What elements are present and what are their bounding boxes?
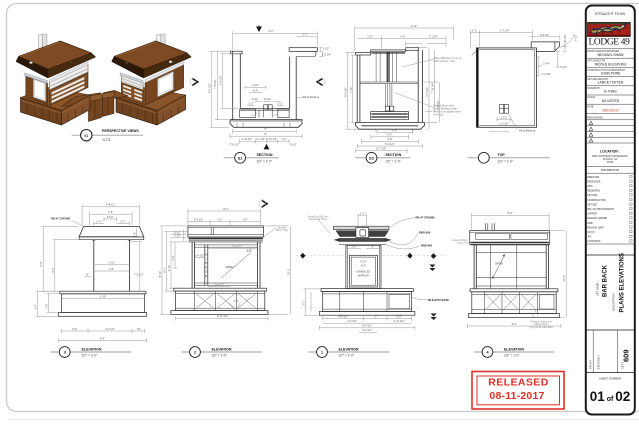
svg-text:4'-0": 4'-0" (400, 34, 405, 38)
svg-text:Beveled Mirror: Beveled Mirror (453, 239, 468, 242)
svg-text:2'-0": 2'-0" (33, 304, 37, 309)
svg-text:7'-9 1/2": 7'-9 1/2" (134, 272, 144, 276)
svg-text:DIR. OF PHOTOGRAPHY: DIR. OF PHOTOGRAPHY (587, 208, 614, 211)
svg-text:1/2" = 1'-0": 1/2" = 1'-0" (339, 354, 355, 358)
svg-text:2'-5 1/4": 2'-5 1/4" (322, 53, 332, 57)
svg-text:6'-7 3/4": 6'-7 3/4" (376, 147, 386, 151)
svg-text:SECTION: SECTION (385, 153, 401, 157)
svg-text:3'-10": 3'-10" (360, 259, 367, 263)
svg-text:4'-8": 4'-8" (387, 137, 392, 141)
svg-text:8 1/2": 8 1/2" (264, 97, 271, 101)
svg-text:2'-7 1/4": 2'-7 1/4" (500, 28, 510, 32)
svg-text:Cabinet Doors: Cabinet Doors (534, 323, 550, 326)
svg-text:GAFFER: GAFFER (587, 213, 597, 216)
svg-text:(Typ): (Typ) (457, 243, 462, 245)
svg-text:1'-6": 1'-6" (45, 303, 49, 308)
svg-text:buffet shelves. (Typ): buffet shelves. (Typ) (434, 60, 456, 63)
svg-text:DATE :: DATE : (587, 105, 595, 108)
svg-text:S2: S2 (369, 155, 375, 160)
svg-text:LANCE TOFTEN: LANCE TOFTEN (598, 80, 624, 84)
svg-text:NICOLE ELESPURU: NICOLE ELESPURU (595, 62, 627, 66)
svg-text:SECTION: SECTION (257, 153, 273, 157)
svg-text:4'-0": 4'-0" (253, 88, 258, 92)
svg-text:8'-10 1/2": 8'-10 1/2" (217, 314, 228, 318)
svg-text:RB-47 CROWN: RB-47 CROWN (51, 217, 70, 221)
svg-text:609: 609 (622, 349, 631, 362)
svg-text:9'-6": 9'-6" (512, 322, 517, 326)
svg-text:SCALE :: SCALE : (587, 96, 597, 99)
svg-text:1 1/2": 1 1/2" (501, 115, 508, 119)
svg-text:7'-4 1/2": 7'-4 1/2" (232, 244, 242, 248)
svg-text:5'-4 1/4": 5'-4 1/4" (385, 142, 395, 146)
svg-text:ATLANTA, GA: ATLANTA, GA (603, 158, 618, 161)
svg-text:4090 NORTHEAST EXPRESSWAY: 4090 NORTHEAST EXPRESSWAY (592, 155, 629, 158)
svg-text:8'-2 1/2": 8'-2 1/2" (208, 83, 212, 93)
svg-text:RESEARCH: RESEARCH (587, 190, 600, 193)
svg-text:3'-1 3/4": 3'-1 3/4" (429, 34, 439, 38)
svg-text:1'-1/2": 1'-1/2" (574, 34, 578, 41)
svg-text:7'-6 1/2": 7'-6 1/2" (213, 79, 217, 89)
svg-text:DIRECTOR: DIRECTOR (587, 177, 599, 179)
svg-text:2'-3/4": 2'-3/4" (563, 34, 567, 41)
svg-text:R: R (205, 261, 207, 265)
svg-text:3'-8": 3'-8" (108, 210, 113, 214)
svg-text:R: R (205, 274, 207, 278)
svg-text:8'-4 1/2": 8'-4 1/2" (343, 87, 347, 97)
svg-text:1/2" = 1'-0": 1/2" = 1'-0" (212, 354, 228, 358)
svg-text:RIGGING GRIP: RIGGING GRIP (587, 227, 604, 229)
svg-text:UPM: UPM (587, 186, 592, 188)
svg-text:N.T.S.: N.T.S. (103, 138, 112, 142)
svg-text:1'-6": 1'-6" (133, 232, 137, 237)
svg-text:8'-10": 8'-10" (158, 271, 162, 278)
svg-text:PROJ #: PROJ # (589, 359, 593, 369)
svg-text:2'-1": 2'-1" (217, 217, 222, 221)
svg-text:BAR BACK: BAR BACK (603, 264, 609, 297)
svg-text:1/2" = 1'-0": 1/2" = 1'-0" (385, 160, 401, 164)
svg-text:2'-3/4": 2'-3/4" (542, 62, 549, 66)
svg-text:4'-7": 4'-7" (243, 217, 248, 221)
svg-text:ELEVATION: ELEVATION (82, 347, 102, 351)
svg-text:CONSTRUCTION: CONSTRUCTION (587, 200, 606, 202)
svg-text:1'-2": 1'-2" (281, 137, 286, 141)
svg-text:7'-10": 7'-10" (349, 87, 353, 94)
svg-text:(Typ) will all 8 Bar Back: (Typ) will all 8 Bar Back (529, 326, 554, 329)
svg-text:4'-0": 4'-0" (109, 267, 114, 271)
svg-text:Embossed Wood: Embossed Wood (309, 219, 327, 221)
svg-text:8'-2": 8'-2" (268, 29, 273, 33)
svg-text:10'-0": 10'-0" (562, 275, 566, 282)
svg-text:RELEASED: RELEASED (488, 377, 548, 389)
svg-text:1'-11 1/2": 1'-11 1/2" (394, 319, 405, 323)
svg-text:1'-4": 1'-4" (233, 299, 238, 303)
svg-text:8'-4": 8'-4" (223, 207, 228, 211)
svg-text:2'-1": 2'-1" (302, 33, 307, 37)
svg-text:AS NOTED: AS NOTED (602, 99, 620, 103)
svg-text:4'-4 1/2": 4'-4 1/2" (338, 314, 348, 318)
svg-text:SET DRS: SET DRS (587, 195, 597, 197)
svg-text:4'-0": 4'-0" (387, 133, 392, 137)
svg-text:SET DEC: SET DEC (587, 204, 597, 206)
svg-text:EPISODE #: EPISODE # (597, 355, 601, 369)
svg-text:DISTRIBUTION: DISTRIBUTION (601, 168, 619, 172)
svg-text:4'-6 1/2": 4'-6 1/2" (347, 319, 357, 323)
svg-text:1'-9": 1'-9" (247, 248, 252, 252)
svg-text:PLANS ELEVATIONS: PLANS ELEVATIONS (620, 253, 626, 312)
svg-text:9'-4 1/2": 9'-4 1/2" (362, 328, 372, 332)
svg-text:1/2" = 1'-0": 1/2" = 1'-0" (504, 354, 520, 358)
svg-text:RBO-691: RBO-691 (421, 244, 433, 248)
svg-text:9'-10": 9'-10" (100, 294, 107, 298)
svg-text:4'-0": 4'-0" (361, 263, 366, 267)
svg-text:LOCATIONS: LOCATIONS (587, 240, 601, 243)
svg-text:Practical Outlets and: Practical Outlets and (530, 320, 552, 323)
svg-text:MICHAEL SHAW: MICHAEL SHAW (598, 53, 625, 57)
svg-text:the Front.: the Front. (434, 114, 445, 117)
svg-text:SET #: SET # (621, 361, 625, 369)
svg-text:5'-9 1/2": 5'-9 1/2" (219, 75, 223, 85)
svg-text:-8": -8" (86, 272, 89, 276)
svg-text:2'-9 1/2": 2'-9 1/2" (194, 217, 204, 221)
svg-text:1'-0": 1'-0" (472, 28, 477, 32)
svg-text:3'-10": 3'-10" (167, 265, 171, 272)
svg-text:Mirror (Typ): Mirror (Typ) (276, 229, 288, 232)
svg-text:SP. FX: SP. FX (587, 232, 594, 234)
svg-text:2'-1": 2'-1" (302, 300, 306, 305)
svg-text:O: O (205, 270, 207, 274)
svg-text:2'-4 3/4": 2'-4 3/4" (542, 72, 552, 76)
svg-text:8'-6": 8'-6" (508, 211, 513, 215)
svg-text:S1: S1 (238, 155, 244, 160)
svg-text:3'-0": 3'-0" (72, 327, 77, 331)
svg-text:9'-3": 9'-3" (100, 336, 105, 340)
svg-text:2'-4 1/2": 2'-4 1/2" (214, 282, 224, 286)
svg-text:GRIP: GRIP (587, 223, 593, 225)
svg-text:GIMBALED: GIMBALED (356, 269, 370, 273)
svg-text:2": 2" (375, 314, 377, 318)
svg-text:1'-1 1/2": 1'-1 1/2" (256, 137, 266, 141)
svg-text:08-11-2017: 08-11-2017 (489, 390, 544, 402)
svg-text:-7'-8 1/2": -7'-8 1/2" (229, 142, 239, 146)
svg-text:SET NAME :: SET NAME : (596, 281, 600, 296)
svg-text:Signal Bus R&D Net: Signal Bus R&D Net (308, 215, 329, 218)
svg-text:2'-10": 2'-10" (108, 260, 115, 264)
svg-text:1 1/2": 1 1/2" (323, 47, 330, 51)
svg-text:1'-2": 1'-2" (248, 101, 253, 105)
svg-text:5 1/2": 5 1/2" (560, 65, 567, 69)
svg-text:10": 10" (137, 327, 141, 331)
svg-text:9 1/2": 9 1/2" (252, 97, 259, 101)
svg-text:REVISIONS :: REVISIONS : (587, 115, 604, 119)
svg-text:9 1/2": 9 1/2" (107, 215, 114, 219)
svg-text:2'-0": 2'-0" (367, 34, 372, 38)
svg-text:08/10/2017: 08/10/2017 (602, 108, 619, 112)
svg-text:10 1/2": 10 1/2" (174, 232, 181, 234)
svg-text:1'-10 1/2": 1'-10 1/2" (242, 137, 253, 141)
svg-text:TOP: TOP (498, 153, 506, 157)
svg-text:RIGGING GAFFER: RIGGING GAFFER (587, 217, 607, 220)
svg-text:4'-3 1/2": 4'-3 1/2" (105, 327, 115, 331)
svg-text:2'-1": 2'-1" (120, 219, 125, 223)
svg-text:1/2" = 1'-0": 1/2" = 1'-0" (498, 160, 514, 164)
svg-text:1/2" = 1'-0": 1/2" = 1'-0" (82, 354, 98, 358)
svg-text:MLB-2072 BASE: MLB-2072 BASE (428, 298, 449, 302)
svg-text:ELEVATION: ELEVATION (339, 347, 359, 351)
svg-text:2'-2": 2'-2" (171, 255, 175, 260)
svg-text:-8 1/2": -8 1/2" (289, 142, 297, 146)
svg-text:Beveled: Beveled (278, 227, 287, 229)
svg-text:01: 01 (84, 134, 88, 138)
svg-text:3": 3" (264, 127, 266, 131)
svg-text:Mesh Backing: Mesh Backing (519, 129, 536, 133)
svg-text:ELEVATION: ELEVATION (504, 347, 524, 351)
svg-text:PERSPECTIVE VIEWS: PERSPECTIVE VIEWS (102, 129, 139, 133)
svg-text:1'-10 1/2": 1'-10 1/2" (266, 137, 277, 141)
svg-text:2'-7 1/2": 2'-7 1/2" (425, 87, 429, 97)
svg-text:JFX: JFX (587, 237, 592, 239)
svg-text:DRAWN BY :: DRAWN BY : (587, 87, 601, 90)
svg-text:4'-8 1/2": 4'-8 1/2" (106, 203, 116, 207)
svg-text:RBO-959: RBO-959 (419, 230, 431, 234)
svg-text:MIRROR: MIRROR (358, 274, 369, 278)
svg-text:6'-1": 6'-1" (163, 267, 167, 272)
svg-text:R: R (205, 265, 207, 269)
svg-text:B. KING: B. KING (604, 90, 617, 94)
svg-text:ELEVATION: ELEVATION (212, 347, 232, 351)
svg-text:LODGE 49: LODGE 49 (588, 38, 630, 48)
svg-text:10'-0": 10'-0" (286, 269, 290, 276)
svg-text:2'-5 1/4": 2'-5 1/4" (540, 33, 550, 37)
svg-text:Mesh Backing: Mesh Backing (303, 95, 320, 99)
svg-text:3'-4": 3'-4" (51, 267, 55, 272)
svg-text:1'-2 1/2": 1'-2 1/2" (499, 122, 509, 126)
svg-text:JOHN PORE: JOHN PORE (601, 71, 622, 75)
svg-text:30340: 30340 (607, 162, 614, 164)
svg-text:4'-10": 4'-10" (411, 24, 418, 28)
svg-text:OPEN: OPEN (495, 261, 503, 265)
svg-text:1'-2": 1'-2" (277, 101, 282, 105)
svg-text:7'-10 3/4": 7'-10 3/4" (431, 82, 435, 93)
svg-text:5'-4": 5'-4" (39, 261, 43, 266)
svg-text:9": 9" (372, 244, 374, 248)
svg-text:2'-4": 2'-4" (96, 219, 101, 223)
svg-text:PRODUCER: PRODUCER (587, 181, 600, 183)
svg-text:RB-47 CROWN: RB-47 CROWN (416, 215, 435, 219)
svg-text:SHEET NUMBER: SHEET NUMBER (599, 377, 621, 381)
svg-text:8'-4 1/2": 8'-4 1/2" (362, 324, 372, 328)
svg-text:STRAUGHT FILMS: STRAUGHT FILMS (595, 12, 626, 16)
svg-text:2'-0": 2'-0" (396, 314, 401, 318)
svg-text:3'-6": 3'-6" (351, 244, 356, 248)
svg-text:2'-4 1/2": 2'-4 1/2" (195, 253, 205, 257)
svg-text:OPEN: OPEN (225, 265, 233, 269)
svg-text:DESCRIPTION :: DESCRIPTION : (612, 292, 616, 311)
svg-text:2'-10": 2'-10" (252, 83, 259, 87)
svg-text:LOCATION :: LOCATION : (600, 150, 620, 154)
svg-text:1/2" = 1'-0": 1/2" = 1'-0" (257, 160, 273, 164)
svg-text:3'-10": 3'-10" (391, 128, 398, 132)
svg-text:1 1/2": 1 1/2" (175, 236, 181, 238)
svg-text:1'-2": 1'-2" (360, 211, 365, 215)
